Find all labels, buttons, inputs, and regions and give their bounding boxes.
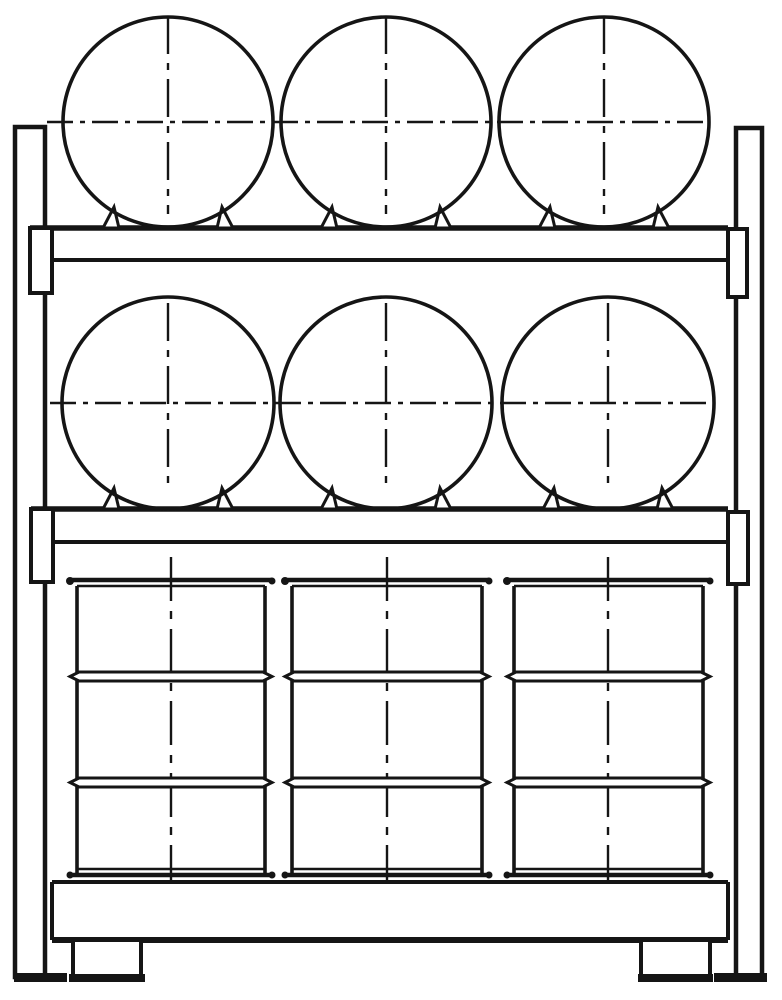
- upright-drum-2-bottom-chime-left-end: [282, 872, 289, 879]
- centerlines: [47, 16, 709, 880]
- rack-base: [52, 882, 728, 982]
- horizontal-drums: [62, 17, 714, 509]
- left-post-foot: [14, 973, 67, 982]
- left-base-foot: [73, 940, 141, 976]
- right-base-foot-bottom-bar: [638, 974, 713, 982]
- upright-drum-2-rib-2: [285, 778, 489, 787]
- middle-beam-left-bracket: [31, 509, 53, 582]
- beam-end-brackets: [30, 228, 748, 584]
- upright-drums: [66, 577, 714, 879]
- upright-drum-3-rib-2: [507, 778, 710, 787]
- upper-beam-right-bracket: [728, 229, 747, 297]
- upright-drum-3-bottom-chime-left-end: [504, 872, 511, 879]
- drawing-canvas: [0, 0, 782, 1000]
- drum-rack-figure: [0, 0, 782, 1000]
- rack-shelf-beams: [30, 228, 728, 542]
- upright-drum-1-rib-1: [70, 672, 272, 681]
- upper-beam-left-bracket: [30, 228, 52, 293]
- upright-drum-3-rib-1: [507, 672, 710, 681]
- upright-drum-3-top-chime-right-end: [707, 578, 714, 585]
- upright-drum-3-top-chime-left-end: [503, 577, 511, 585]
- upright-drum-2-top-chime-left-end: [281, 577, 289, 585]
- upright-drum-1-top-chime-right-end: [269, 578, 276, 585]
- rack-posts: [14, 127, 767, 982]
- right-post-foot: [714, 973, 767, 982]
- upright-drum-2-rib-1: [285, 672, 489, 681]
- middle-beam-right-bracket: [728, 512, 748, 584]
- right-base-foot: [641, 940, 710, 976]
- drum-wedge-chocks: [103, 207, 673, 509]
- upright-drum-1-bottom-chime-left-end: [67, 872, 74, 879]
- upright-drum-3-bottom-chime-right-end: [707, 872, 714, 879]
- upright-drum-1-bottom-chime-right-end: [269, 872, 276, 879]
- left-base-foot-bottom-bar: [69, 974, 145, 982]
- upright-drum-1-top-chime-left-end: [66, 577, 74, 585]
- upright-drum-2-top-chime-right-end: [486, 578, 493, 585]
- upright-drum-1-rib-2: [70, 778, 272, 787]
- upright-drum-2-bottom-chime-right-end: [486, 872, 493, 879]
